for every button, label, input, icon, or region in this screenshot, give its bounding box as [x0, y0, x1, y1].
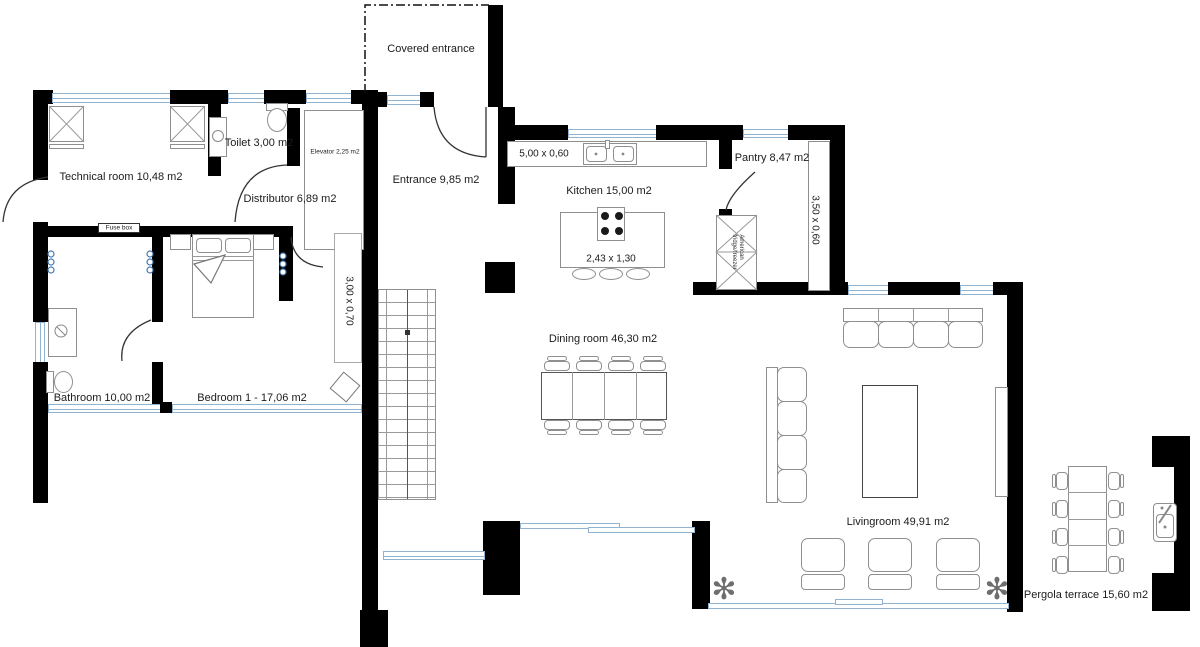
- appliance-box: [170, 106, 205, 142]
- room-label-bedroom: Bedroom 1 - 17,06 m2: [197, 392, 306, 404]
- blanket-line: [192, 260, 254, 261]
- pergola-chair: [1056, 472, 1068, 490]
- sofa-cushion: [777, 435, 807, 470]
- armchair: [936, 538, 980, 572]
- sink-basin: [586, 146, 607, 162]
- armchair-ottoman: [868, 574, 912, 590]
- pillow: [196, 238, 222, 253]
- appliance-box: [49, 106, 84, 142]
- sofa-divider: [948, 308, 949, 322]
- room-label-pantry: Pantry 8,47 m2: [735, 152, 810, 164]
- dining-chair: [640, 361, 666, 371]
- dining-chair: [579, 430, 599, 435]
- window: [172, 404, 362, 413]
- window: [48, 404, 162, 413]
- wall-segment: [488, 5, 503, 107]
- bar-stool: [599, 268, 623, 280]
- door-arc: [726, 172, 755, 210]
- window: [848, 285, 890, 295]
- wall-segment: [33, 90, 48, 180]
- sofa-divider: [878, 308, 879, 322]
- wall-segment: [279, 233, 293, 301]
- dining-chair: [544, 361, 570, 371]
- table-divider: [1068, 519, 1107, 520]
- dining-chair: [611, 430, 631, 435]
- armchair-ottoman: [936, 574, 980, 590]
- nightstand: [170, 234, 191, 250]
- toilet-bowl: [54, 371, 73, 393]
- faucet-icon: [605, 140, 610, 149]
- window: [568, 129, 658, 138]
- bedroom-chair: [330, 372, 361, 403]
- floor-plan: ✻ ✻: [0, 0, 1200, 647]
- sofa-cushion: [913, 321, 949, 348]
- table-divider: [1068, 545, 1107, 546]
- room-label-elevator: Elevator 2,25 m2: [310, 149, 359, 156]
- table-divider: [636, 372, 637, 420]
- armchair: [801, 538, 845, 572]
- pergola-chair: [1108, 472, 1120, 490]
- door-arc: [3, 177, 48, 222]
- room-label-pergola: Pergola terrace 15,60 m2: [1024, 589, 1148, 601]
- wall-segment: [378, 92, 387, 107]
- sofa-cushion: [777, 367, 807, 402]
- wall-segment: [360, 610, 388, 647]
- door-arc: [434, 107, 486, 157]
- pergola-chair: [1052, 474, 1056, 488]
- stair-centerline: [407, 290, 408, 499]
- toilet-tank: [46, 371, 54, 393]
- pergola-chair: [1120, 558, 1124, 572]
- sliding-door: [835, 599, 883, 605]
- appliance-tray: [170, 144, 205, 149]
- sink-basin: [613, 146, 634, 162]
- window: [383, 551, 485, 560]
- fuse-box-label: Fuse box: [106, 225, 133, 232]
- coffee-table: [862, 385, 918, 498]
- toilet-bowl: [267, 108, 287, 132]
- cooktop: [597, 207, 625, 241]
- wall-segment: [264, 90, 306, 104]
- wall-segment: [503, 125, 568, 140]
- dining-chair: [576, 361, 602, 371]
- plant-icon: ✻: [984, 575, 1009, 605]
- dim-label-closet: 3,00 x 0,70: [344, 276, 355, 325]
- pergola-chair: [1120, 530, 1124, 544]
- dining-chair: [547, 430, 567, 435]
- window: [35, 322, 45, 364]
- elevator-shaft: [304, 110, 364, 250]
- sofa-cushion: [948, 321, 983, 348]
- wall-segment: [152, 237, 163, 322]
- pergola-chair: [1120, 474, 1124, 488]
- dim-label-kitchen-island: 2,43 x 1,30: [586, 254, 635, 265]
- table-divider: [604, 372, 605, 420]
- dim-label-kitchen-counter: 5,00 x 0,60: [519, 149, 568, 160]
- window: [228, 93, 266, 103]
- wall-column: [692, 521, 710, 609]
- plant-icon: ✻: [711, 575, 736, 605]
- dining-chair: [608, 420, 634, 430]
- blanket-line: [192, 256, 254, 257]
- outdoor-sink-basin: [1156, 514, 1174, 538]
- dining-chair: [544, 420, 570, 430]
- armchair: [868, 538, 912, 572]
- wall-segment: [1007, 282, 1023, 612]
- sofa-cushion: [878, 321, 914, 348]
- wall-segment: [1152, 573, 1190, 611]
- wall-column: [483, 521, 520, 595]
- wall-segment: [888, 282, 960, 295]
- dim-label-pantry-counter: 3,50 x 0,60: [810, 195, 821, 244]
- wall-segment: [1152, 436, 1190, 467]
- armchair-ottoman: [801, 574, 845, 590]
- dining-chair: [608, 361, 634, 371]
- sofa-cushion: [777, 401, 807, 436]
- wall-column: [485, 262, 515, 293]
- wall-segment: [420, 92, 434, 107]
- sofa-cushion: [777, 469, 807, 503]
- room-label-technical: Technical room 10,48 m2: [60, 171, 183, 183]
- window: [306, 93, 353, 103]
- sofa-divider: [913, 308, 914, 322]
- pergola-chair: [1052, 558, 1056, 572]
- sofa-cushion: [843, 321, 879, 348]
- sliding-door: [588, 527, 695, 533]
- appliance-tray: [49, 144, 84, 149]
- pergola-chair: [1108, 556, 1120, 574]
- fridge-label: Americanfridge/freezer: [730, 234, 744, 269]
- dining-chair: [576, 420, 602, 430]
- pergola-chair: [1056, 500, 1068, 518]
- room-label-covered-entrance: Covered entrance: [387, 43, 474, 55]
- pergola-chair: [1108, 500, 1120, 518]
- room-label-kitchen: Kitchen 15,00 m2: [566, 185, 652, 197]
- pillow: [225, 238, 251, 253]
- door-arc: [122, 320, 151, 361]
- pergola-chair: [1056, 528, 1068, 546]
- window: [743, 129, 790, 138]
- table-divider: [572, 372, 573, 420]
- wall-segment: [830, 125, 845, 295]
- room-label-entrance: Entrance 9,85 m2: [393, 174, 480, 186]
- tv-sideboard: [995, 387, 1008, 497]
- wall-segment: [170, 90, 228, 104]
- room-label-dining: Dining room 46,30 m2: [549, 333, 657, 345]
- wall-segment: [33, 222, 48, 322]
- pergola-chair: [1052, 502, 1056, 516]
- nightstand: [253, 234, 274, 250]
- table-divider: [1068, 492, 1107, 493]
- stair-dot: [405, 330, 410, 335]
- window: [52, 93, 172, 103]
- room-label-bathroom: Bathroom 10,00 m2: [54, 392, 151, 404]
- pergola-chair: [1120, 502, 1124, 516]
- dining-chair: [640, 420, 666, 430]
- pergola-chair: [1108, 528, 1120, 546]
- wall-segment: [362, 237, 378, 610]
- dining-chair: [643, 430, 663, 435]
- wall-segment: [362, 90, 378, 240]
- pergola-chair: [1052, 530, 1056, 544]
- vanity: [48, 308, 77, 357]
- stair-stringer: [427, 290, 428, 499]
- bar-stool: [572, 268, 596, 280]
- stairs: [378, 289, 436, 500]
- bar-stool: [626, 268, 650, 280]
- room-label-toilet: Toilet 3,00 m2: [225, 137, 293, 149]
- pergola-chair: [1056, 556, 1068, 574]
- wall-segment: [160, 402, 172, 413]
- window: [960, 285, 995, 295]
- wall-segment: [719, 125, 732, 169]
- stair-stringer: [386, 290, 387, 499]
- room-label-distributor: Distributor 6,89 m2: [244, 193, 337, 205]
- room-label-livingroom: Livingroom 49,91 m2: [847, 516, 950, 528]
- window: [387, 95, 422, 105]
